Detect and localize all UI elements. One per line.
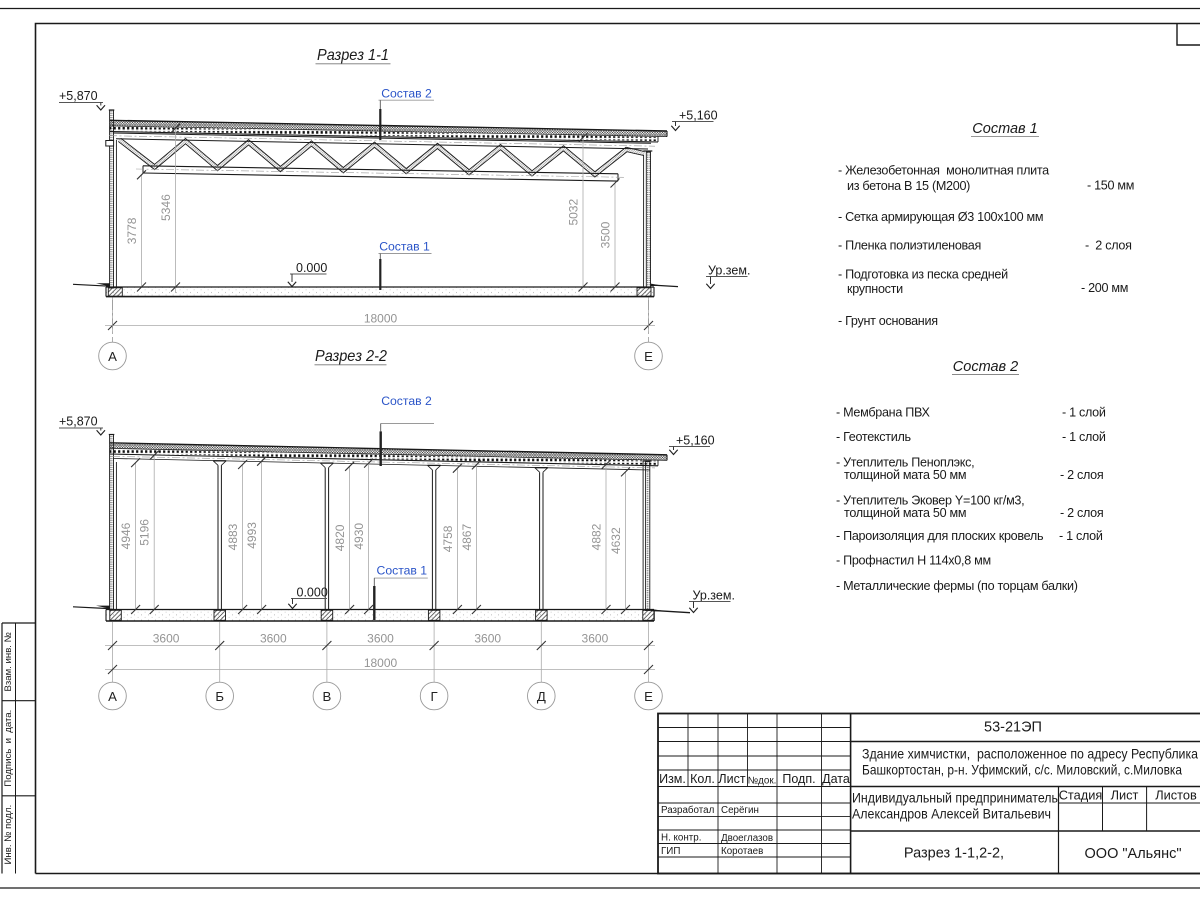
svg-text:Состав 1: Состав 1 [377,564,428,578]
svg-text:ООО "Альянс": ООО "Альянс" [1085,846,1182,862]
svg-text:- 1 слой: - 1 слой [1062,430,1106,444]
svg-text:- Сетка армирующая Ø3 100х100: - Сетка армирующая Ø3 100х100 мм [838,210,1043,224]
svg-text:+5,160: +5,160 [679,109,718,123]
svg-text:Г: Г [431,689,438,704]
svg-text:Листов: Листов [1155,788,1197,803]
svg-text:- Грунт основания: - Грунт основания [838,314,938,328]
svg-text:Состав 1: Состав 1 [972,121,1037,137]
svg-text:- 150 мм: - 150 мм [1087,179,1134,193]
svg-text:Двоеглазов: Двоеглазов [721,833,773,844]
svg-text:Здание химчистки, расположенн: Здание химчистки, расположенное по адрес… [862,746,1198,762]
svg-text:5346: 5346 [159,194,173,221]
svg-text:Е: Е [644,349,653,364]
svg-text:5032: 5032 [567,199,581,226]
svg-text:0.000: 0.000 [296,261,327,275]
svg-text:Состав 2: Состав 2 [381,87,432,101]
svg-text:Коротаев: Коротаев [721,846,763,857]
svg-text:+5,870: +5,870 [59,415,98,429]
svg-text:ГИП: ГИП [661,846,680,857]
svg-text:- Пароизоляция для плоских кро: - Пароизоляция для плоских кровель [836,529,1044,543]
svg-text:Ур.зем.: Ур.зем. [708,264,750,278]
svg-text:Разрез 1-1: Разрез 1-1 [317,47,389,64]
svg-text:Инв. № подл.: Инв. № подл. [3,805,14,865]
svg-text:Состав 2: Состав 2 [381,394,432,408]
svg-text:4930: 4930 [352,523,366,550]
svg-text:- Геотекстиль: - Геотекстиль [836,430,912,444]
svg-text:- Мембрана ПВХ: - Мембрана ПВХ [836,406,931,420]
svg-text:3600: 3600 [367,632,394,646]
svg-text:Состав 2: Состав 2 [953,359,1018,375]
svg-text:Лист: Лист [718,772,745,786]
svg-text:- Профнастил Н 114х0,8 мм: - Профнастил Н 114х0,8 мм [836,554,991,568]
svg-text:В: В [323,689,332,704]
svg-text:- 2 слоя: - 2 слоя [1060,506,1103,520]
svg-text:№док.: №док. [748,776,777,787]
svg-text:А: А [108,689,117,704]
svg-text:Взам. инв. №: Взам. инв. № [3,632,14,691]
svg-text:толщиной мата 50 мм: толщиной мата 50 мм [844,506,966,520]
svg-text:3500: 3500 [599,221,613,248]
svg-text:Ур.зем.: Ур.зем. [693,589,735,603]
svg-text:Подп.: Подп. [782,772,815,786]
svg-text:А: А [108,349,117,364]
svg-text:из бетона В 15 (М200): из бетона В 15 (М200) [847,179,970,193]
svg-text:- 200 мм: - 200 мм [1081,281,1128,295]
svg-text:5196: 5196 [138,519,152,546]
svg-text:- Металлические фермы (по торц: - Металлические фермы (по торцам балки) [836,579,1078,593]
svg-text:4993: 4993 [245,522,259,549]
svg-text:3600: 3600 [582,632,609,646]
svg-text:4820: 4820 [333,524,347,551]
svg-text:18000: 18000 [364,312,398,326]
svg-text:Разрез 1-1,2-2,: Разрез 1-1,2-2, [904,846,1004,862]
svg-text:толщиной мата 50 мм: толщиной мата 50 мм [844,468,966,482]
svg-text:Разрез 2-2: Разрез 2-2 [315,348,387,365]
svg-text:- Железобетонная монолитная п: - Железобетонная монолитная плита [838,164,1049,178]
svg-text:53-21ЭП: 53-21ЭП [984,720,1042,736]
svg-text:- Пленка полиэтиленовая: - Пленка полиэтиленовая [838,239,981,253]
svg-text:- 1 слой: - 1 слой [1059,529,1103,543]
svg-text:4632: 4632 [609,527,623,554]
svg-text:4883: 4883 [226,523,240,550]
svg-text:+5,870: +5,870 [59,89,98,103]
svg-text:3600: 3600 [260,632,287,646]
svg-text:3600: 3600 [153,632,180,646]
svg-text:- 2 слоя: - 2 слоя [1060,468,1103,482]
svg-text:Н. контр.: Н. контр. [661,832,701,843]
svg-text:0.000: 0.000 [297,586,328,600]
svg-text:Индивидуальный предприниматель: Индивидуальный предприниматель [852,790,1058,806]
svg-text:Кол.: Кол. [690,772,715,786]
svg-text:4867: 4867 [460,524,474,551]
svg-text:Дата: Дата [822,772,850,786]
svg-text:3600: 3600 [474,632,501,646]
svg-text:Д: Д [537,689,546,704]
svg-text:Изм.: Изм. [659,772,686,786]
svg-text:4946: 4946 [119,522,133,549]
svg-text:+5,160: +5,160 [676,434,715,448]
svg-text:Б: Б [215,689,224,704]
svg-text:Александров Алексей Витальевич: Александров Алексей Витальевич [852,806,1051,822]
svg-text:Разработал: Разработал [661,805,715,816]
svg-text:4758: 4758 [441,525,455,552]
svg-text:Стадия: Стадия [1059,788,1103,803]
svg-text:- 1 слой: - 1 слой [1062,406,1106,420]
svg-text:- Подготовка из песка средней: - Подготовка из песка средней [838,268,1008,282]
svg-text:крупности: крупности [847,282,903,296]
svg-text:Лист: Лист [1111,788,1139,803]
svg-text:3778: 3778 [125,217,139,244]
svg-text:Е: Е [644,689,653,704]
svg-text:Серёгин: Серёгин [721,805,759,816]
svg-text:Башкортостан, р-н. Уфимский, с: Башкортостан, р-н. Уфимский, с/с. Миловс… [862,762,1182,778]
svg-text:4882: 4882 [590,523,604,550]
svg-text:Состав 1: Состав 1 [379,240,430,254]
svg-text:Подпись и дата.: Подпись и дата. [3,710,14,787]
svg-text:- 2 слоя: - 2 слоя [1085,239,1132,253]
svg-text:18000: 18000 [364,656,398,670]
